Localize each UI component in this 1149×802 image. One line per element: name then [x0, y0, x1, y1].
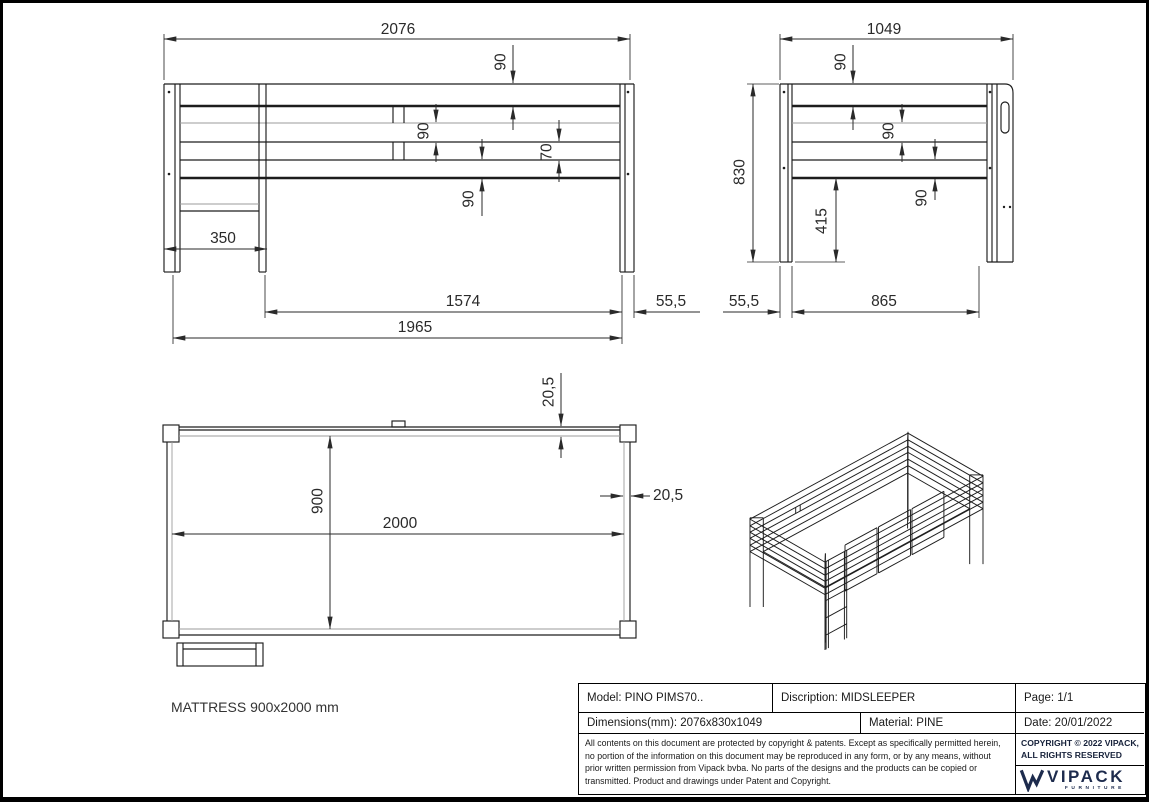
- dim-front-rail-top: 90: [493, 53, 510, 71]
- dim-front-rail-gap: 70: [539, 143, 556, 161]
- title-block-model: Model: PINO PIMS70..: [579, 684, 773, 713]
- top-view: 20,5 900 2000 20,5 MATTRESS 900x2000 mm: [163, 373, 683, 715]
- title-block-date: Date: 20/01/2022: [1016, 713, 1144, 734]
- dim-side-rail-mid: 90: [881, 122, 898, 140]
- dim-top-frame-thickness-top: 20,5: [541, 377, 558, 407]
- title-block: Model: PINO PIMS70.. Discription: MIDSLE…: [578, 683, 1146, 795]
- copyright-line1: COPYRIGHT © 2022 VIPACK,: [1021, 738, 1139, 748]
- dim-top-frame-thickness-right: 20,5: [653, 487, 683, 504]
- dim-front-span-base: 1965: [398, 319, 432, 336]
- dim-side-under-clearance: 415: [814, 208, 831, 234]
- mattress-note: MATTRESS 900x2000 mm: [171, 699, 339, 715]
- side-view: 1049 830 415 90 90 90 55,5 865: [723, 21, 1013, 318]
- front-view: 2076 90 90 70 90 350 1574 55,5 1965: [164, 21, 700, 344]
- isometric-view: [750, 432, 983, 650]
- dim-side-post-width: 55,5: [729, 293, 759, 310]
- dim-front-post-width: 55,5: [656, 293, 686, 310]
- vipack-logo: VIPACK FURNITURE: [1016, 766, 1144, 793]
- dim-side-rail-low: 90: [914, 189, 931, 207]
- dim-side-total-depth: 1049: [867, 21, 901, 38]
- title-block-dimensions: Dimensions(mm): 2076x830x1049: [579, 713, 861, 734]
- dim-front-rail-low: 90: [461, 190, 478, 208]
- brand-subtitle: FURNITURE: [1065, 786, 1125, 791]
- dim-side-rail-top: 90: [833, 53, 850, 71]
- dim-front-total-width: 2076: [381, 21, 415, 38]
- vipack-logo-mark-icon: [1019, 767, 1045, 792]
- dim-side-span-inner: 865: [871, 293, 897, 310]
- copyright-line2: ALL RIGHTS RESERVED: [1021, 750, 1122, 760]
- brand-name: VIPACK: [1047, 768, 1125, 785]
- dim-top-length: 2000: [383, 515, 418, 532]
- copyright-short: COPYRIGHT © 2022 VIPACK, ALL RIGHTS RESE…: [1016, 734, 1144, 766]
- copyright-notice: All contents on this document are protec…: [579, 734, 1016, 794]
- technical-drawing-canvas: 2076 90 90 70 90 350 1574 55,5 1965: [0, 0, 1149, 802]
- dim-side-height: 830: [732, 159, 749, 185]
- title-block-material: Material: PINE: [861, 713, 1016, 734]
- dim-front-rail-mid: 90: [416, 122, 433, 140]
- technical-drawing-page: 2076 90 90 70 90 350 1574 55,5 1965: [0, 0, 1149, 802]
- dim-front-span-inner: 1574: [446, 293, 481, 310]
- dim-front-ladder-offset: 350: [210, 230, 236, 247]
- title-block-description: Discription: MIDSLEEPER: [773, 684, 1016, 713]
- handle-slot: [1001, 102, 1009, 133]
- title-block-page: Page: 1/1: [1016, 684, 1144, 713]
- dim-top-width: 900: [310, 488, 327, 514]
